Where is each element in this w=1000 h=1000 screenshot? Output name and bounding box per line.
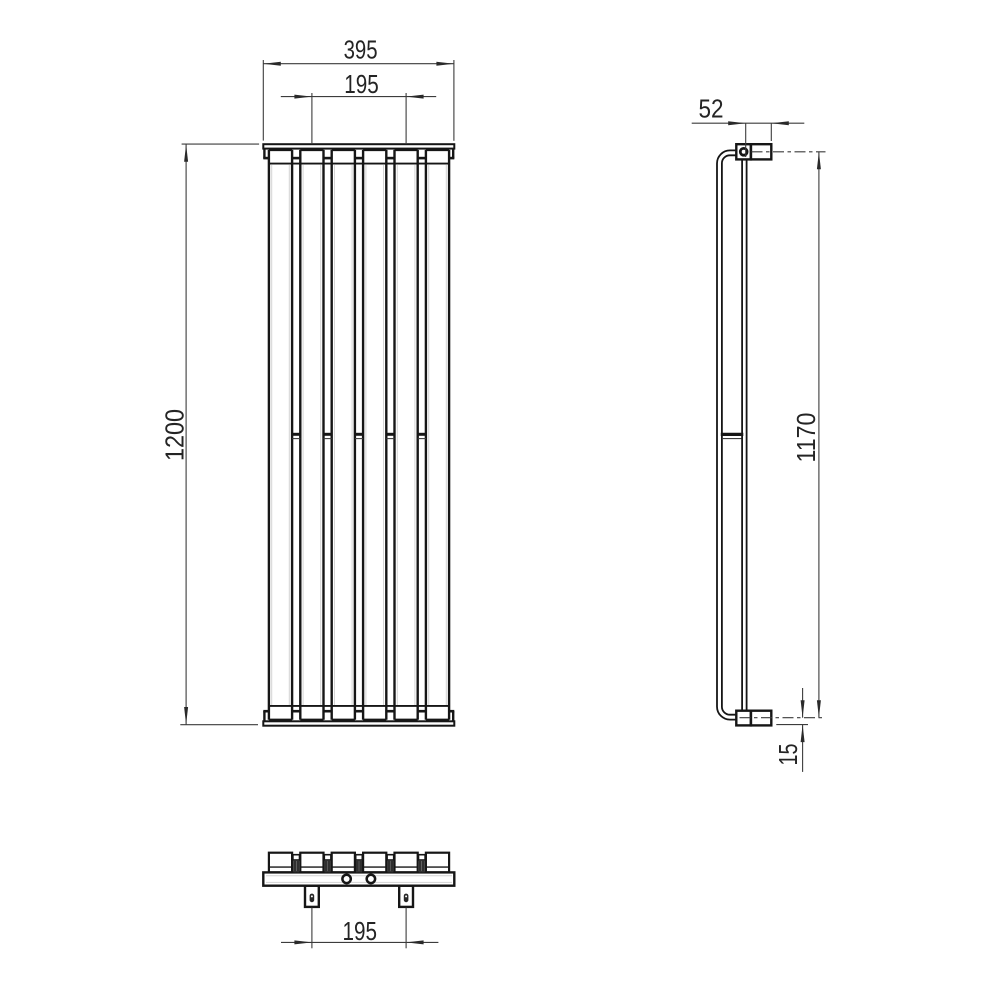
svg-text:1200: 1200 — [160, 409, 190, 461]
svg-text:195: 195 — [344, 69, 379, 99]
svg-text:395: 395 — [344, 35, 378, 65]
svg-text:195: 195 — [343, 916, 378, 946]
svg-text:1170: 1170 — [791, 413, 821, 463]
svg-text:52: 52 — [699, 94, 724, 124]
svg-text:15: 15 — [773, 744, 803, 766]
